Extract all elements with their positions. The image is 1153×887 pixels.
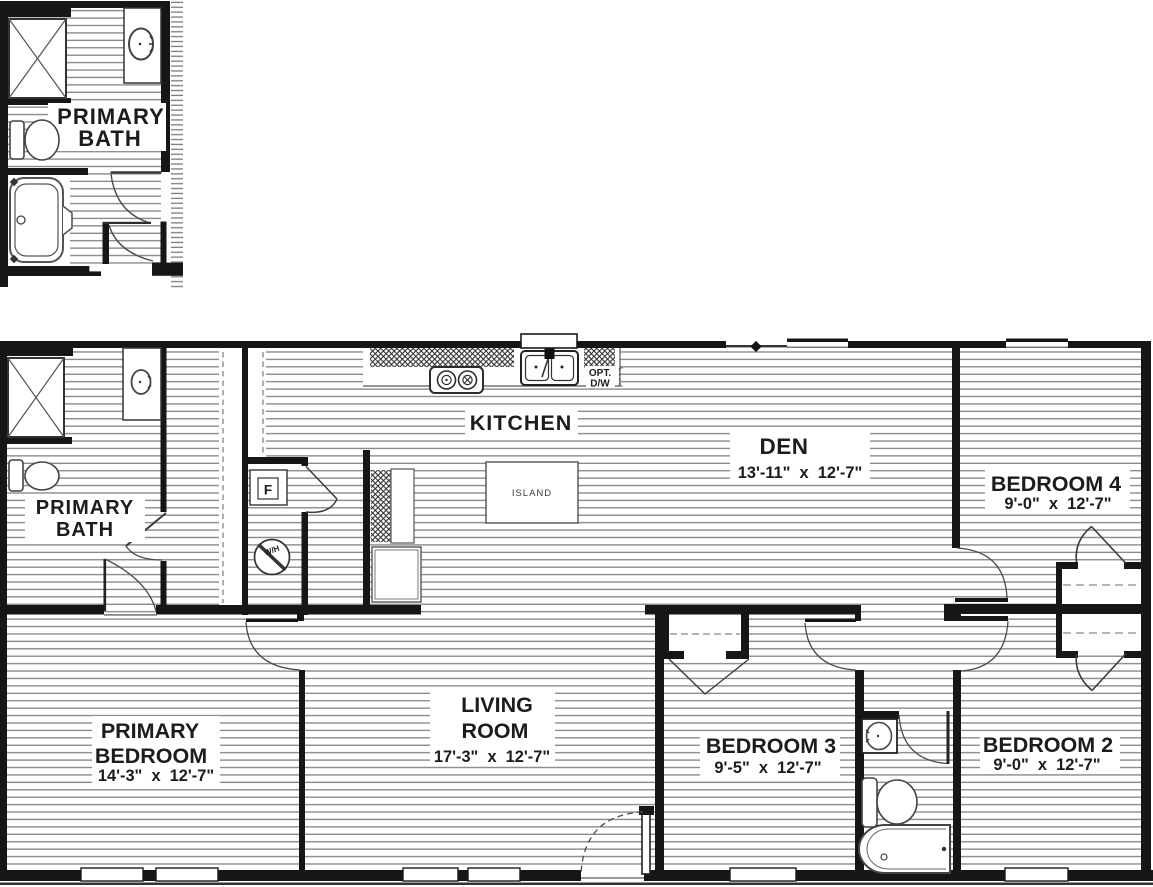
svg-text:ISLAND: ISLAND xyxy=(512,488,552,499)
svg-text:PRIMARY: PRIMARY xyxy=(36,497,134,519)
svg-text:KITCHEN: KITCHEN xyxy=(470,411,573,435)
svg-text:13'-11" x 12'-7": 13'-11" x 12'-7" xyxy=(738,464,863,482)
svg-text:DEN: DEN xyxy=(759,434,808,459)
svg-text:BEDROOM: BEDROOM xyxy=(95,744,207,768)
svg-text:F: F xyxy=(264,483,272,498)
svg-text:LIVING: LIVING xyxy=(461,693,533,717)
svg-text:OPT.: OPT. xyxy=(589,368,611,379)
svg-text:BATH: BATH xyxy=(78,126,141,151)
svg-text:17'-3" x 12'-7": 17'-3" x 12'-7" xyxy=(434,748,550,766)
svg-text:BEDROOM 2: BEDROOM 2 xyxy=(983,733,1113,757)
svg-text:BEDROOM 4: BEDROOM 4 xyxy=(991,472,1121,496)
svg-text:9'-0" x 12'-7": 9'-0" x 12'-7" xyxy=(1004,495,1111,513)
svg-text:9'-5" x 12'-7": 9'-5" x 12'-7" xyxy=(714,759,821,777)
svg-text:ROOM: ROOM xyxy=(462,719,529,743)
svg-text:BATH: BATH xyxy=(56,519,114,541)
svg-text:PRIMARY: PRIMARY xyxy=(101,719,199,743)
svg-text:14'-3" x 12'-7": 14'-3" x 12'-7" xyxy=(98,767,214,785)
svg-text:D/W: D/W xyxy=(590,379,610,390)
svg-text:BEDROOM 3: BEDROOM 3 xyxy=(706,734,836,758)
svg-text:9'-0" x 12'-7": 9'-0" x 12'-7" xyxy=(993,756,1100,774)
